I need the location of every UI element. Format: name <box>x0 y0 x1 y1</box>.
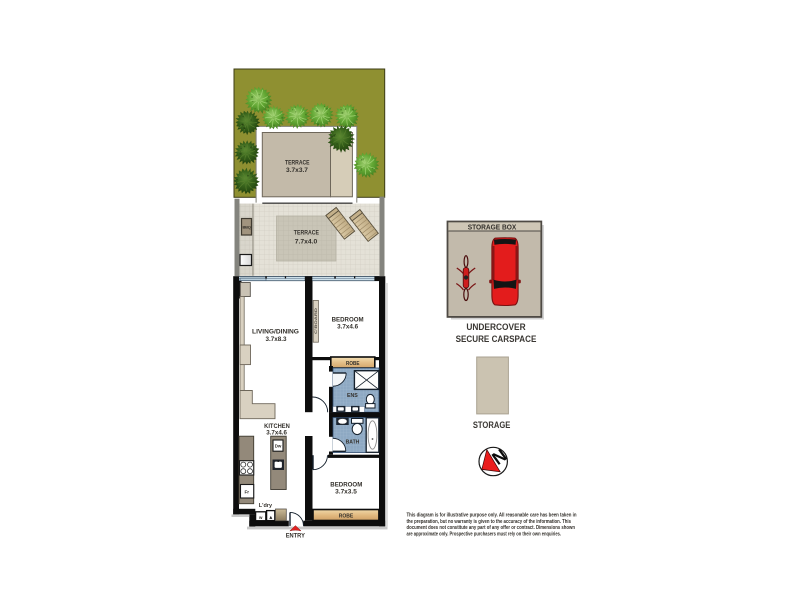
svg-text:ROBE: ROBE <box>339 513 354 519</box>
svg-text:BATH: BATH <box>346 439 360 445</box>
svg-text:SECURE CARSPACE: SECURE CARSPACE <box>456 334 537 345</box>
svg-text:Dw: Dw <box>275 444 282 449</box>
svg-text:7.7x4.0: 7.7x4.0 <box>295 239 318 246</box>
svg-text:ROBE: ROBE <box>346 361 360 367</box>
svg-text:This diagram is for illustrati: This diagram is for illustrative purpose… <box>407 513 577 519</box>
svg-text:TERRACE: TERRACE <box>285 159 310 166</box>
svg-text:C'BOARD: C'BOARD <box>314 307 318 334</box>
svg-text:the preparation, but no warran: the preparation, but no warranty is give… <box>407 519 572 525</box>
svg-text:LIVING/DINING: LIVING/DINING <box>252 328 299 335</box>
svg-text:STORAGE: STORAGE <box>473 420 511 431</box>
svg-text:TERRACE: TERRACE <box>294 230 320 237</box>
svg-text:ENS: ENS <box>347 393 358 399</box>
svg-text:3.7x4.6: 3.7x4.6 <box>266 429 287 436</box>
svg-text:3.7x3.5: 3.7x3.5 <box>335 488 357 495</box>
svg-text:STORAGE BOX: STORAGE BOX <box>468 222 517 231</box>
svg-text:L'dry: L'dry <box>259 503 273 509</box>
svg-text:3.7x3.7: 3.7x3.7 <box>286 167 308 174</box>
svg-text:Fr: Fr <box>245 490 250 495</box>
svg-text:BEDROOM: BEDROOM <box>332 316 364 323</box>
svg-text:w: w <box>258 515 263 520</box>
svg-text:document does not constitute a: document does not constitute any part of… <box>407 525 576 531</box>
svg-text:are approximate only. Prospect: are approximate only. Prospective purcha… <box>407 531 562 537</box>
svg-text:BBQ: BBQ <box>242 224 250 229</box>
svg-text:3.7x8.3: 3.7x8.3 <box>266 336 287 343</box>
svg-text:3.7x4.6: 3.7x4.6 <box>337 323 358 330</box>
svg-text:UNDERCOVER: UNDERCOVER <box>466 322 525 333</box>
svg-text:ENTRY: ENTRY <box>286 532 306 539</box>
